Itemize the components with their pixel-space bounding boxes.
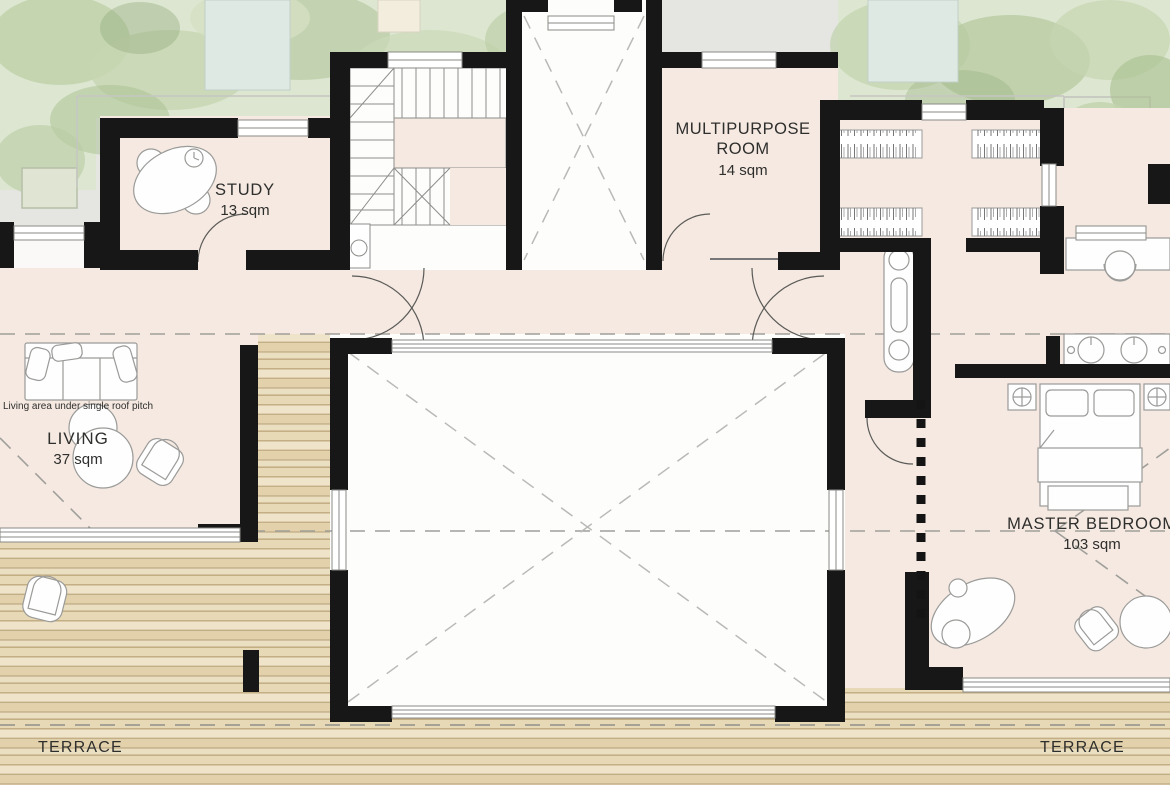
window: [702, 52, 776, 68]
sofa: [24, 342, 138, 400]
window: [922, 104, 966, 120]
terrace-side-strip: [258, 334, 330, 540]
pillow: [1046, 390, 1088, 416]
niche-sill: [14, 240, 86, 268]
planter-box: [22, 168, 77, 208]
floor-plan-svg: STUDY 13 sqm MULTIPURPOSE ROOM 14 sqm Li…: [0, 0, 1170, 785]
double-sink-vanity: [1064, 334, 1170, 366]
window: [829, 490, 843, 570]
floor-plan-canvas: STUDY 13 sqm MULTIPURPOSE ROOM 14 sqm Li…: [0, 0, 1170, 785]
nightstand-left: [1008, 384, 1036, 410]
window: [548, 16, 614, 30]
room-label-multipurpose-area: 14 sqm: [718, 162, 767, 179]
bathtub-column: [884, 244, 914, 372]
glazing: [963, 678, 1170, 692]
window: [332, 490, 346, 570]
room-label-living-name: LIVING: [47, 429, 109, 448]
window: [238, 120, 308, 136]
room-label-multipurpose-line2: ROOM: [716, 140, 769, 158]
central-void: [330, 334, 845, 718]
room-label-study-name: STUDY: [215, 181, 275, 199]
window: [1042, 164, 1056, 206]
pillow: [1094, 390, 1134, 416]
room-label-study-area: 13 sqm: [220, 202, 269, 219]
bed: [1038, 384, 1142, 510]
bed-bench: [1048, 486, 1128, 510]
terrace-column: [243, 650, 259, 692]
nightstand-right: [1144, 384, 1170, 410]
wardrobe-bank: [838, 130, 922, 158]
wardrobe-bank: [972, 130, 1048, 158]
room-label-master-bedroom-area: 103 sqm: [1063, 536, 1121, 553]
glazing: [0, 528, 240, 542]
window: [388, 52, 462, 68]
room-label-living-area: 37 sqm: [53, 451, 102, 468]
terrace-right-deck: [845, 688, 1170, 785]
terrace-right-label: TERRACE: [1040, 739, 1125, 756]
upper-void: [506, 0, 662, 270]
room-label-master-bedroom-name: MASTER BEDROOM: [1007, 515, 1170, 533]
terrace-center-deck: [330, 718, 845, 785]
glazing: [392, 340, 772, 352]
wardrobe-bank: [972, 208, 1048, 236]
window: [14, 226, 84, 240]
terrace-left-label: TERRACE: [38, 739, 123, 756]
wardrobe-bank: [838, 208, 922, 236]
room-label-multipurpose-line1: MULTIPURPOSE: [676, 120, 811, 138]
glazing: [392, 706, 775, 718]
lounge-table: [1120, 596, 1170, 648]
window: [1076, 226, 1146, 240]
living-roof-note: Living area under single roof pitch: [3, 401, 153, 412]
